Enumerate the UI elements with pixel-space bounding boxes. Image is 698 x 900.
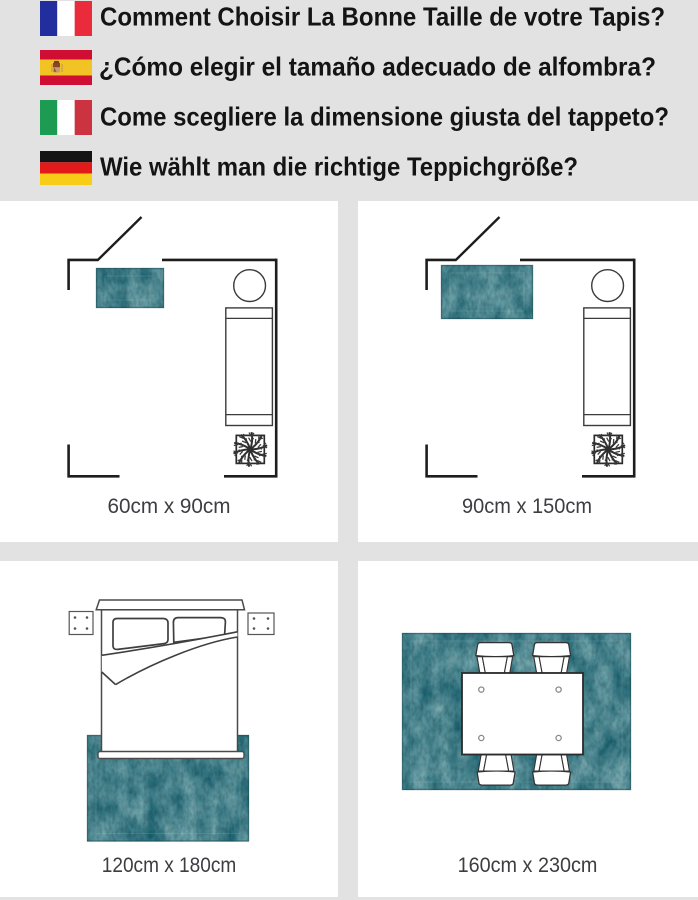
svg-text:¿Cómo elegir el tamaño adecuad: ¿Cómo elegir el tamaño adecuado de alfom… — [99, 52, 656, 82]
svg-text:90cm x 150cm: 90cm x 150cm — [462, 494, 592, 518]
svg-text:Come scegliere la dimensione g: Come scegliere la dimensione giusta del … — [100, 102, 669, 132]
svg-text:160cm x 230cm: 160cm x 230cm — [458, 853, 598, 877]
svg-text:120cm x 180cm: 120cm x 180cm — [102, 853, 237, 877]
svg-text:Wie wählt man die richtige Tep: Wie wählt man die richtige Teppichgröße? — [100, 152, 578, 182]
svg-text:Comment Choisir La Bonne Taill: Comment Choisir La Bonne Taille de votre… — [100, 2, 665, 32]
svg-text:60cm x 90cm: 60cm x 90cm — [108, 494, 231, 518]
